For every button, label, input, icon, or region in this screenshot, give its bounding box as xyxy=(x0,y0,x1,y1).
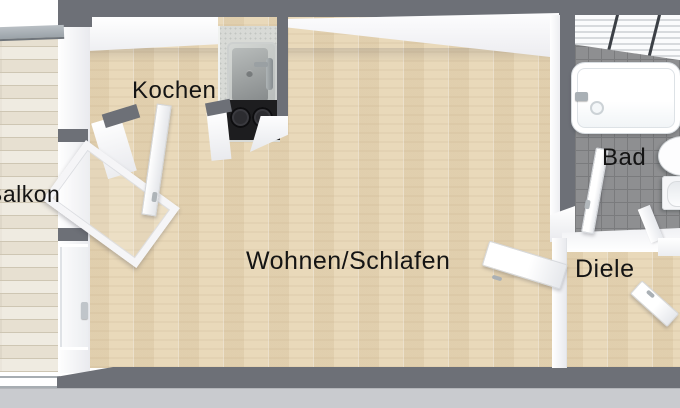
entrance-wall-stub xyxy=(658,238,680,256)
window-handle xyxy=(81,302,88,319)
room-label-bad: Bad xyxy=(602,145,646,171)
exterior-ground-strip xyxy=(0,388,680,408)
sink-drain xyxy=(246,70,253,77)
burner-left xyxy=(230,107,251,128)
sink-faucet-spout xyxy=(254,62,268,67)
left-wall-cap-mid xyxy=(58,129,88,142)
room-label-kochen: Kochen xyxy=(132,78,216,104)
toilet-bowl xyxy=(667,181,680,207)
balcony-railing-icon xyxy=(0,25,64,41)
room-label-diele: Diele xyxy=(575,256,634,284)
living-diele-wall xyxy=(552,238,567,368)
floor-plan: Balkon Kochen Wohnen/Schlafen Bad Diele xyxy=(0,0,680,408)
window-icon xyxy=(60,244,88,350)
wall-shadow xyxy=(88,48,558,62)
exterior-wall-top xyxy=(58,0,680,17)
exterior-wall-bottom xyxy=(57,366,680,390)
left-wall-cap-top xyxy=(58,0,92,27)
tub-drain xyxy=(590,101,604,115)
room-label-wohnen-schlafen: Wohnen/Schlafen xyxy=(246,248,450,276)
kitchen-divider-wall xyxy=(277,15,288,118)
balcony-railing-bottom xyxy=(0,372,60,388)
tub-faucet-icon xyxy=(575,92,588,101)
room-label-balkon: Balkon xyxy=(0,182,60,207)
